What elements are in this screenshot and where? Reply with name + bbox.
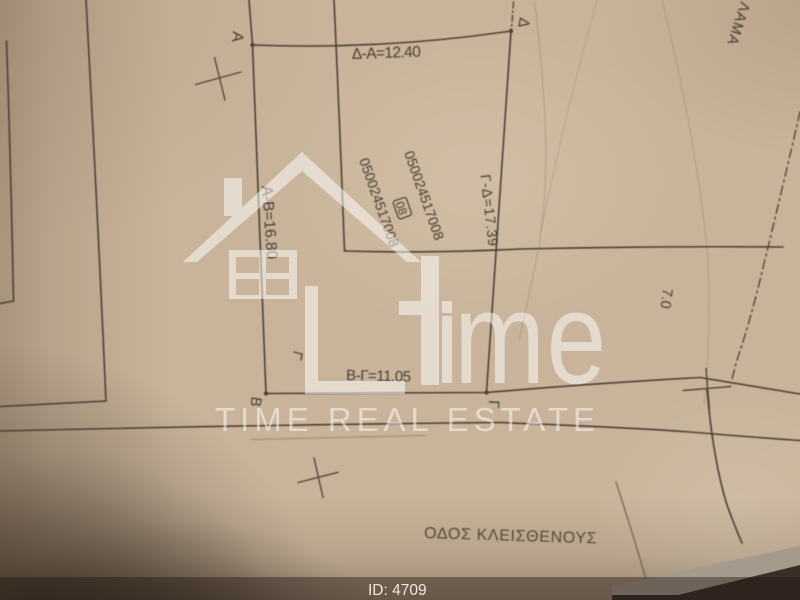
svg-text:ΟΔΟΣ ΚΛΕΙΣΘΕΝΟΥΣ: ΟΔΟΣ ΚΛΕΙΣΘΕΝΟΥΣ [424,525,597,547]
svg-text:Δ: Δ [514,16,532,29]
svg-text:TIME REAL ESTATE: TIME REAL ESTATE [215,401,595,438]
svg-text:ID: 4709: ID: 4709 [368,582,427,599]
svg-text:Α: Α [228,31,246,44]
svg-text:Γ-Δ=17.39: Γ-Δ=17.39 [478,174,502,248]
svg-text:ΛΑΜΑ: ΛΑΜΑ [723,0,752,48]
svg-text:050024517008: 050024517008 [401,149,447,243]
svg-text:7.0: 7.0 [657,288,675,310]
svg-text:Δ-Α=12.40: Δ-Α=12.40 [352,44,422,63]
svg-text:08: 08 [392,200,410,218]
svg-text:e: e [547,266,607,411]
svg-text:m: m [454,265,545,411]
